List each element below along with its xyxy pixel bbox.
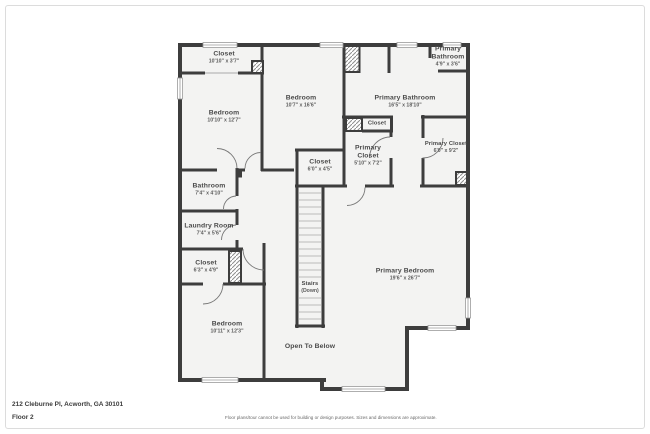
- floor-label: Floor 2: [12, 414, 34, 421]
- room-label-primary-closet-right: Primary Closet 6'0" x 9'2": [425, 141, 467, 155]
- room-label-closet-center: Closet 6'0" x 4'5": [308, 158, 333, 173]
- room-label-closet-mid: Closet: [368, 121, 386, 128]
- room-label-bedroom-bottom: Bedroom 10'11" x 12'3": [210, 320, 243, 335]
- room-label-primary-bedroom: Primary Bedroom 19'6" x 26'7": [376, 267, 435, 282]
- room-label-bedroom-center: Bedroom 10'7" x 16'6": [286, 94, 317, 109]
- room-label-bathroom: Bathroom 7'4" x 4'10": [193, 182, 226, 197]
- room-label-primary-bathroom-small: Primary Bathroom 4'9" x 3'6": [425, 45, 471, 68]
- room-label-primary-bathroom: Primary Bathroom 16'5" x 18'10": [375, 94, 436, 109]
- floor-plan-drawing: [0, 0, 650, 434]
- room-label-stairs: Stairs (Down): [299, 281, 321, 295]
- room-label-open-to-below: Open To Below: [285, 343, 335, 351]
- room-label-primary-closet-left: Primary Closet 5'10" x 7'2": [350, 144, 386, 167]
- address-text: 212 Cleburne Pl, Acworth, GA 30101: [12, 401, 123, 408]
- room-label-closet-bl: Closet 6'3" x 4'9": [194, 259, 219, 274]
- floor-plan-page: Closet 10'10" x 3'7" Bedroom 10'10" x 12…: [0, 0, 650, 434]
- room-label-closet-tl: Closet 10'10" x 3'7": [209, 50, 239, 65]
- disclaimer-text: Floor plans/tour cannot be used for buil…: [225, 415, 437, 420]
- room-label-laundry-room: Laundry Room 7'4" x 5'6": [184, 222, 233, 237]
- room-label-bedroom-tl: Bedroom 10'10" x 12'7": [207, 109, 240, 124]
